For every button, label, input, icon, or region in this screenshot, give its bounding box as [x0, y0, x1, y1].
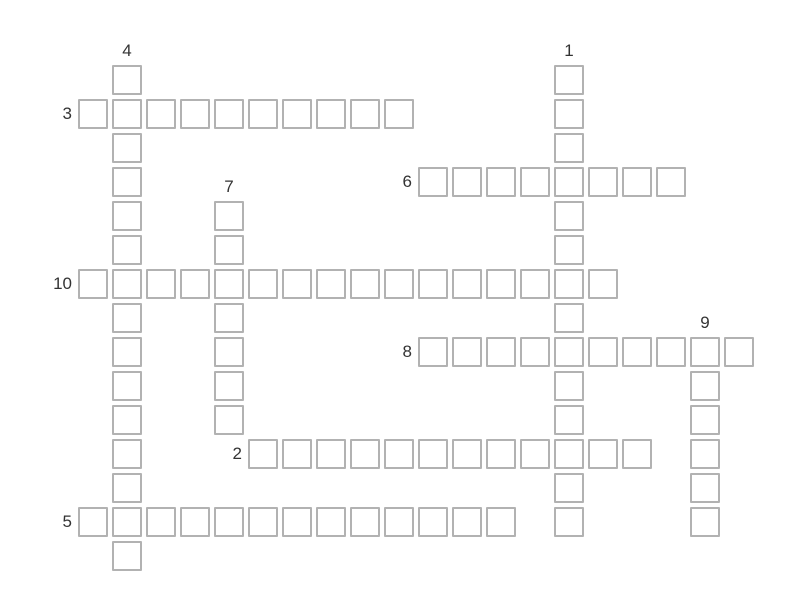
crossword-cell-r11-c5[interactable] — [248, 439, 278, 469]
crossword-cell-r1-c6[interactable] — [282, 99, 312, 129]
crossword-cell-r6-c12[interactable] — [486, 269, 516, 299]
crossword-cell-r1-c8[interactable] — [350, 99, 380, 129]
crossword-cell-r8-c17[interactable] — [656, 337, 686, 367]
crossword-cell-r8-c18[interactable] — [690, 337, 720, 367]
clue-number-4: 4 — [112, 39, 142, 63]
clue-number-9: 9 — [690, 311, 720, 335]
crossword-cell-r6-c6[interactable] — [282, 269, 312, 299]
crossword-cell-r1-c2[interactable] — [146, 99, 176, 129]
crossword-cell-r3-c11[interactable] — [452, 167, 482, 197]
crossword-cell-r11-c15[interactable] — [588, 439, 618, 469]
crossword-cell-r11-c1[interactable] — [112, 439, 142, 469]
crossword-cell-r13-c5[interactable] — [248, 507, 278, 537]
clue-number-3: 3 — [28, 99, 72, 129]
crossword-cell-r3-c16[interactable] — [622, 167, 652, 197]
crossword-cell-r13-c4[interactable] — [214, 507, 244, 537]
crossword-cell-r12-c18[interactable] — [690, 473, 720, 503]
crossword-cell-r3-c10[interactable] — [418, 167, 448, 197]
crossword-cell-r5-c1[interactable] — [112, 235, 142, 265]
crossword-cell-r3-c13[interactable] — [520, 167, 550, 197]
crossword-cell-r6-c2[interactable] — [146, 269, 176, 299]
crossword-cell-r4-c1[interactable] — [112, 201, 142, 231]
crossword-cell-r6-c15[interactable] — [588, 269, 618, 299]
crossword-cell-r13-c7[interactable] — [316, 507, 346, 537]
clue-number-7: 7 — [214, 175, 244, 199]
crossword-cell-r11-c9[interactable] — [384, 439, 414, 469]
crossword-cell-r6-c5[interactable] — [248, 269, 278, 299]
clue-number-1: 1 — [554, 39, 584, 63]
crossword-cell-r3-c12[interactable] — [486, 167, 516, 197]
crossword-cell-r6-c10[interactable] — [418, 269, 448, 299]
crossword-cell-r7-c1[interactable] — [112, 303, 142, 333]
crossword-cell-r6-c11[interactable] — [452, 269, 482, 299]
crossword-cell-r6-c14[interactable] — [554, 269, 584, 299]
crossword-cell-r13-c12[interactable] — [486, 507, 516, 537]
crossword-cell-r12-c1[interactable] — [112, 473, 142, 503]
crossword-cell-r6-c9[interactable] — [384, 269, 414, 299]
crossword-cell-r1-c14[interactable] — [554, 99, 584, 129]
crossword-cell-r11-c11[interactable] — [452, 439, 482, 469]
crossword-cell-r0-c14[interactable] — [554, 65, 584, 95]
crossword-cell-r6-c4[interactable] — [214, 269, 244, 299]
crossword-cell-r4-c4[interactable] — [214, 201, 244, 231]
crossword-cell-r13-c1[interactable] — [112, 507, 142, 537]
crossword-cell-r11-c12[interactable] — [486, 439, 516, 469]
crossword-cell-r2-c14[interactable] — [554, 133, 584, 163]
crossword-cell-r6-c13[interactable] — [520, 269, 550, 299]
crossword-cell-r8-c11[interactable] — [452, 337, 482, 367]
crossword-cell-r2-c1[interactable] — [112, 133, 142, 163]
crossword-cell-r3-c14[interactable] — [554, 167, 584, 197]
crossword-cell-r1-c9[interactable] — [384, 99, 414, 129]
crossword-cell-r10-c14[interactable] — [554, 405, 584, 435]
crossword-cell-r12-c14[interactable] — [554, 473, 584, 503]
crossword-cell-r8-c14[interactable] — [554, 337, 584, 367]
crossword-cell-r13-c0[interactable] — [78, 507, 108, 537]
crossword-cell-r13-c8[interactable] — [350, 507, 380, 537]
crossword-cell-r10-c4[interactable] — [214, 405, 244, 435]
crossword-cell-r6-c0[interactable] — [78, 269, 108, 299]
crossword-cell-r8-c1[interactable] — [112, 337, 142, 367]
crossword-cell-r4-c14[interactable] — [554, 201, 584, 231]
clue-number-6: 6 — [368, 167, 412, 197]
crossword-cell-r13-c11[interactable] — [452, 507, 482, 537]
crossword-cell-r0-c1[interactable] — [112, 65, 142, 95]
crossword-cell-r3-c15[interactable] — [588, 167, 618, 197]
crossword-cell-r8-c12[interactable] — [486, 337, 516, 367]
crossword-cell-r9-c4[interactable] — [214, 371, 244, 401]
crossword-cell-r1-c4[interactable] — [214, 99, 244, 129]
crossword-cell-r9-c14[interactable] — [554, 371, 584, 401]
crossword-cell-r7-c4[interactable] — [214, 303, 244, 333]
crossword-cell-r11-c16[interactable] — [622, 439, 652, 469]
crossword-cell-r11-c14[interactable] — [554, 439, 584, 469]
crossword-cell-r9-c1[interactable] — [112, 371, 142, 401]
crossword-cell-r11-c8[interactable] — [350, 439, 380, 469]
crossword-cell-r3-c1[interactable] — [112, 167, 142, 197]
crossword-cell-r13-c10[interactable] — [418, 507, 448, 537]
crossword-cell-r1-c0[interactable] — [78, 99, 108, 129]
crossword-cell-r11-c10[interactable] — [418, 439, 448, 469]
crossword-cell-r8-c15[interactable] — [588, 337, 618, 367]
clue-number-2: 2 — [198, 439, 242, 469]
crossword-cell-r1-c7[interactable] — [316, 99, 346, 129]
clue-number-10: 10 — [28, 269, 72, 299]
crossword-cell-r7-c14[interactable] — [554, 303, 584, 333]
crossword-cell-r13-c14[interactable] — [554, 507, 584, 537]
crossword-cell-r6-c3[interactable] — [180, 269, 210, 299]
crossword-cell-r10-c1[interactable] — [112, 405, 142, 435]
crossword-cell-r8-c4[interactable] — [214, 337, 244, 367]
crossword-cell-r8-c10[interactable] — [418, 337, 448, 367]
crossword-cell-r11-c13[interactable] — [520, 439, 550, 469]
crossword-grid: 12345678910 — [0, 0, 800, 600]
crossword-cell-r1-c1[interactable] — [112, 99, 142, 129]
crossword-cell-r11-c7[interactable] — [316, 439, 346, 469]
crossword-cell-r13-c9[interactable] — [384, 507, 414, 537]
crossword-cell-r5-c14[interactable] — [554, 235, 584, 265]
crossword-cell-r6-c8[interactable] — [350, 269, 380, 299]
crossword-cell-r11-c18[interactable] — [690, 439, 720, 469]
clue-number-8: 8 — [368, 337, 412, 367]
crossword-cell-r13-c6[interactable] — [282, 507, 312, 537]
clue-number-5: 5 — [28, 507, 72, 537]
crossword-cell-r8-c19[interactable] — [724, 337, 754, 367]
crossword-cell-r8-c13[interactable] — [520, 337, 550, 367]
crossword-cell-r5-c4[interactable] — [214, 235, 244, 265]
crossword-cell-r1-c5[interactable] — [248, 99, 278, 129]
crossword-cell-r9-c18[interactable] — [690, 371, 720, 401]
crossword-cell-r1-c3[interactable] — [180, 99, 210, 129]
crossword-cell-r13-c3[interactable] — [180, 507, 210, 537]
crossword-cell-r10-c18[interactable] — [690, 405, 720, 435]
crossword-cell-r8-c16[interactable] — [622, 337, 652, 367]
crossword-cell-r13-c18[interactable] — [690, 507, 720, 537]
crossword-cell-r11-c6[interactable] — [282, 439, 312, 469]
crossword-cell-r3-c17[interactable] — [656, 167, 686, 197]
crossword-cell-r13-c2[interactable] — [146, 507, 176, 537]
crossword-cell-r6-c7[interactable] — [316, 269, 346, 299]
crossword-cell-r6-c1[interactable] — [112, 269, 142, 299]
crossword-cell-r14-c1[interactable] — [112, 541, 142, 571]
